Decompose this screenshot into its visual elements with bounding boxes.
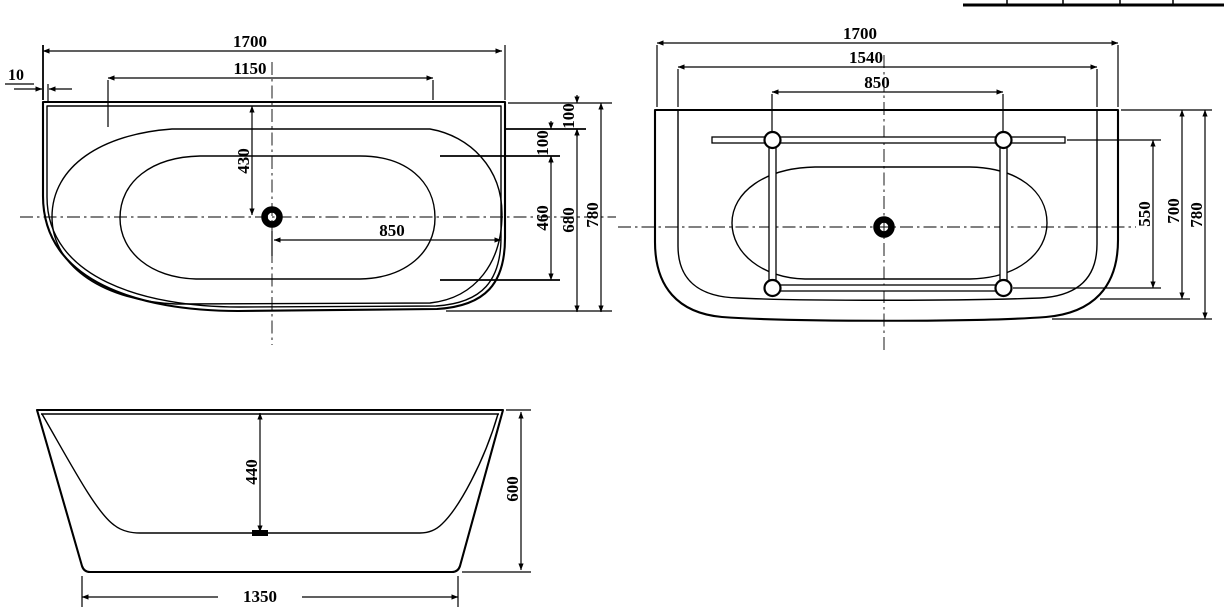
dim-label-base-length: 1350 bbox=[243, 587, 277, 606]
title-block-partial bbox=[963, 0, 1224, 5]
dim-label-drain-to-back: 430 bbox=[234, 148, 253, 174]
plan-dimension-lines bbox=[5, 51, 601, 312]
dim-label-overall-width: 780 bbox=[1187, 202, 1206, 228]
dim-label-feet-span: 850 bbox=[864, 73, 890, 92]
bathtub-dimension-drawing: 1700 1150 10 430 850 100 100 460 680 780 bbox=[0, 0, 1224, 608]
dim-label-feet-width: 550 bbox=[1135, 201, 1154, 227]
basin-inner-profile bbox=[42, 414, 498, 533]
dim-label-inner-length: 1150 bbox=[233, 59, 266, 78]
elevation-dimension-lines bbox=[82, 412, 521, 597]
foot-top-right bbox=[996, 132, 1012, 148]
left-support-rail bbox=[769, 140, 776, 288]
dim-label-overall-length: 1700 bbox=[843, 24, 877, 43]
tub-side-profile bbox=[37, 410, 503, 572]
dim-label-overall-length: 1700 bbox=[233, 32, 267, 51]
dim-label-base-length: 1540 bbox=[849, 48, 883, 67]
lower-support-bar bbox=[772, 285, 1004, 291]
elevation-view: 440 600 1350 bbox=[37, 410, 531, 607]
plan-view: 1700 1150 10 430 850 100 100 460 680 780 bbox=[5, 32, 616, 345]
dim-label-overall-height: 600 bbox=[503, 476, 522, 502]
bottom-dimension-lines bbox=[657, 43, 1205, 319]
right-support-rail bbox=[1000, 140, 1007, 288]
foot-bottom-right bbox=[996, 280, 1012, 296]
technical-drawing-page: 1700 1150 10 430 850 100 100 460 680 780 bbox=[0, 0, 1224, 608]
dim-label-inner-depth: 440 bbox=[242, 459, 261, 485]
bottom-view: 1700 1540 850 550 700 780 bbox=[618, 24, 1212, 352]
dim-label-inner-width: 680 bbox=[559, 207, 578, 233]
dim-label-wall-gap: 10 bbox=[8, 67, 24, 84]
dim-label-well-width: 460 bbox=[533, 205, 552, 231]
support-frame bbox=[712, 132, 1065, 296]
dim-label-overall-width: 780 bbox=[583, 202, 602, 228]
dim-label-base-width: 700 bbox=[1164, 198, 1183, 224]
dim-label-inner-rim: 100 bbox=[533, 130, 552, 156]
dim-label-drain-to-right: 850 bbox=[379, 221, 405, 240]
foot-bottom-left bbox=[765, 280, 781, 296]
dim-label-back-rim: 100 bbox=[559, 103, 578, 129]
foot-top-left bbox=[765, 132, 781, 148]
